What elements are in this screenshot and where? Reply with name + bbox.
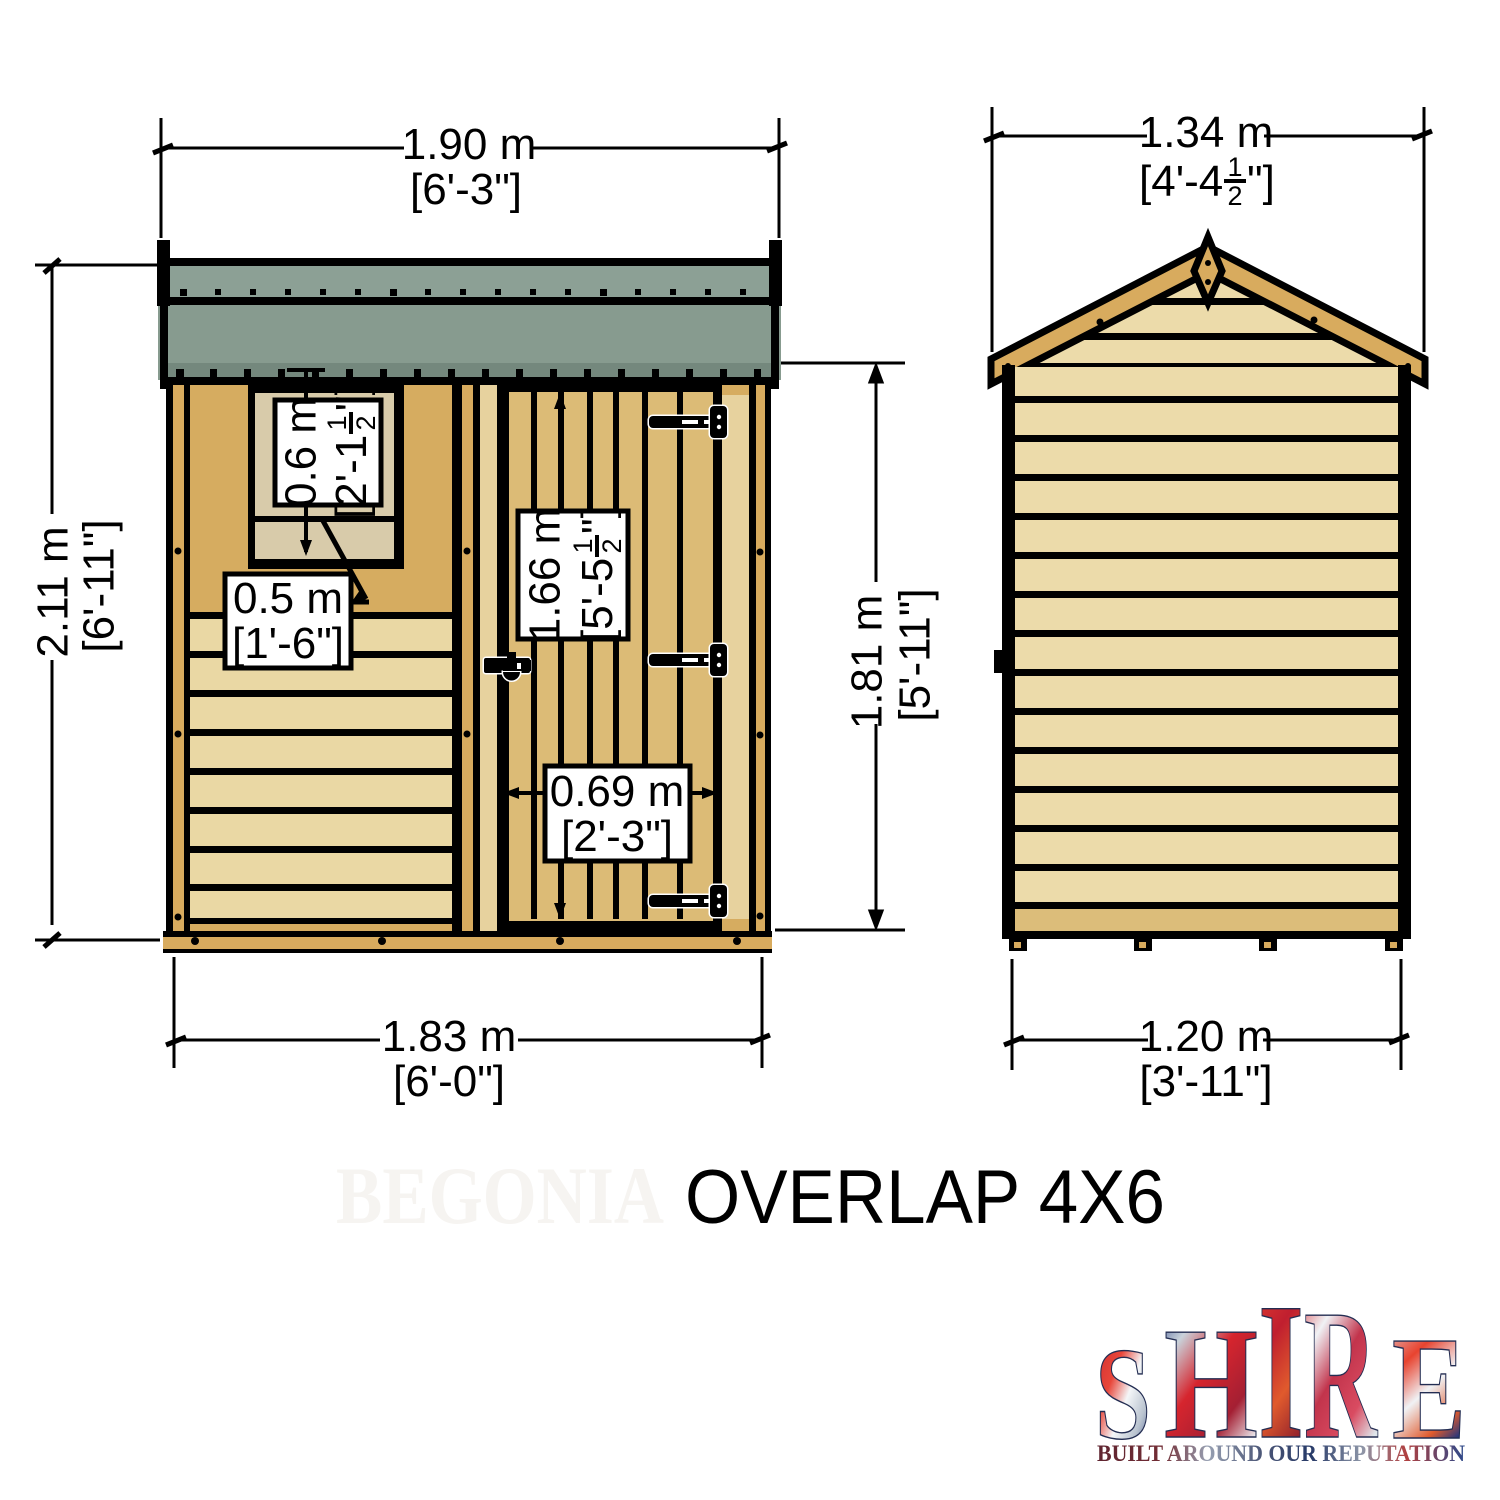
svg-text:[6'-3"]: [6'-3"] [410,165,522,214]
svg-text:1.34 m: 1.34 m [1139,108,1274,157]
svg-text:1.83 m: 1.83 m [382,1012,517,1061]
svg-text:2.11 m: 2.11 m [29,526,78,657]
svg-text:[6'-0"]: [6'-0"] [393,1057,505,1106]
svg-text:1: 1 [1227,152,1242,182]
svg-text:[6'-11"]: [6'-11"] [75,519,124,652]
svg-text:2: 2 [597,538,627,553]
svg-text:2: 2 [351,415,381,430]
svg-text:1: 1 [568,538,598,553]
svg-text:BEGONIA: BEGONIA [336,1150,664,1241]
svg-text:1.90 m: 1.90 m [402,120,537,169]
svg-text:"]: "] [573,506,622,534]
svg-text:[5'-11"]: [5'-11"] [891,588,940,721]
svg-text:0.6 m: 0.6 m [277,397,326,507]
svg-text:"]: "] [327,383,376,411]
svg-text:1.66 m: 1.66 m [521,508,570,643]
svg-text:[3'-11"]: [3'-11"] [1139,1057,1272,1106]
svg-text:[2'-3"]: [2'-3"] [561,812,673,861]
svg-text:1: 1 [322,415,352,430]
svg-text:0.5 m: 0.5 m [233,574,343,623]
svg-text:[1'-6"]: [1'-6"] [232,619,344,668]
svg-text:1.81 m: 1.81 m [843,595,892,730]
svg-text:[4'-4: [4'-4 [1139,157,1223,206]
svg-text:2: 2 [1227,181,1242,211]
svg-text:"]: "] [1247,157,1275,206]
svg-text:[2'-1: [2'-1 [327,435,376,519]
svg-text:1.20 m: 1.20 m [1139,1012,1274,1061]
svg-text:0.69 m: 0.69 m [550,767,685,816]
svg-text:BUILT AROUND OUR REPUTATION: BUILT AROUND OUR REPUTATION [1097,1441,1465,1466]
svg-text:OVERLAP 4X6: OVERLAP 4X6 [685,1155,1165,1240]
svg-text:[5'-5: [5'-5 [573,558,622,642]
